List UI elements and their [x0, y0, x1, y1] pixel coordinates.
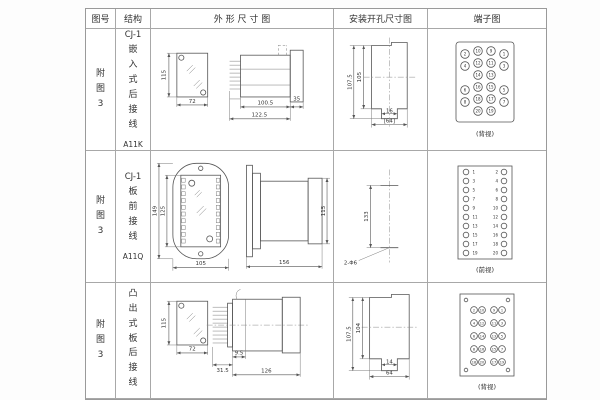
- terminal-number: 6: [473, 334, 475, 338]
- terminal-fins: [230, 61, 241, 89]
- outline-diagram-a11k: 115 72 100.5 35 122.5: [151, 29, 334, 151]
- terminal-number: 20: [475, 108, 481, 113]
- structure-code: A11K: [123, 140, 143, 149]
- dim-115: 115: [161, 69, 167, 79]
- screw-square: [182, 198, 186, 202]
- terminal-number: 12: [475, 60, 481, 65]
- terminal-circle: [463, 232, 469, 238]
- view-caption: (背视): [478, 382, 496, 391]
- terminal-number: 19: [500, 360, 504, 364]
- dim-107-5: 107.5: [346, 326, 352, 342]
- terminal-block-outline: [458, 166, 512, 259]
- terminal-diagram-a11h: 2104126148161820911131351571719 (背视): [428, 283, 546, 399]
- terminal-number: 19: [473, 250, 479, 255]
- terminal-number: 1: [503, 51, 506, 56]
- terminal-number: 10: [480, 308, 484, 312]
- terminal-grid: 2109141211314136161558181772019: [461, 46, 509, 115]
- terminal-number: 15: [492, 347, 496, 351]
- terminal-number: 7: [501, 347, 503, 351]
- terminal-number: 16: [475, 84, 481, 89]
- terminal-number: 18: [475, 96, 481, 101]
- screw-square: [182, 218, 186, 222]
- screw-square: [216, 205, 220, 209]
- view-caption: (背视): [476, 129, 494, 138]
- screw-square: [182, 205, 186, 209]
- structure-desc: 嵌入式后接线: [128, 43, 137, 132]
- dim-72: 72: [189, 98, 196, 104]
- screw-square: [216, 218, 220, 222]
- terminal-number: 2: [495, 169, 498, 174]
- terminal-number: 4: [464, 63, 467, 68]
- structure-a11q: CJ-1 板前接线 A11Q: [116, 151, 151, 283]
- terminal-circle: [501, 223, 507, 229]
- mount-drawing: 107.5 104 14 64: [334, 283, 427, 399]
- terminal-number: 16: [493, 232, 499, 237]
- terminal-number: 4: [495, 178, 498, 183]
- screw-square: [216, 198, 220, 202]
- terminal-number: 12: [480, 321, 484, 325]
- terminal-number: 20: [480, 360, 484, 364]
- screw-square: [216, 178, 220, 182]
- terminal-number: 5: [501, 334, 503, 338]
- front-view: [177, 53, 208, 97]
- terminal-number: 13: [473, 223, 479, 228]
- terminal-number: 3: [473, 178, 476, 183]
- terminal-number: 6: [495, 187, 498, 192]
- dim-35: 35: [293, 96, 300, 102]
- side-view: [246, 165, 322, 256]
- terminal-number: 13: [492, 334, 496, 338]
- header-terminal-diagram: 端子图: [428, 9, 546, 29]
- terminal-circle: [463, 187, 469, 193]
- screw-square: [182, 212, 186, 216]
- terminal-grid: 2104126148161820911131351571719: [464, 298, 510, 372]
- spec-table: 图号 结构 外 形 尺 寸 图 安装开孔尺寸图 端子图 附图3 CJ-1 嵌入式…: [85, 8, 547, 400]
- dim-64: 64: [386, 370, 393, 376]
- front-view: [177, 301, 208, 345]
- screw-square: [182, 232, 186, 236]
- terminal-number: 8: [464, 99, 467, 104]
- terminal-number: 6: [464, 87, 467, 92]
- dim-156: 156: [279, 260, 290, 266]
- structure-code: A11H: [123, 398, 143, 399]
- mount-diagram-a11h: 107.5 104 14 64: [334, 283, 428, 399]
- terminal-circle: [501, 241, 507, 247]
- screw-square: [216, 232, 220, 236]
- mount-drawing: 107.5 105 16 [64]: [334, 29, 427, 151]
- structure-desc: 板前接线: [128, 185, 137, 244]
- terminal-number: 1: [501, 308, 503, 312]
- dim-107-5: 107.5: [347, 74, 353, 90]
- terminal-circle: [501, 250, 507, 256]
- terminal-number: 7: [503, 99, 506, 104]
- terminal-number: 9: [493, 308, 495, 312]
- terminal-circle: [506, 298, 510, 302]
- terminal-number: 14: [493, 223, 499, 228]
- terminal-circle: [463, 205, 469, 211]
- dim-72: 72: [189, 346, 196, 352]
- header-mounting-dims: 安装开孔尺寸图: [334, 9, 428, 29]
- terminal-number: 9: [490, 48, 493, 53]
- front-view: [173, 163, 229, 258]
- terminal-circle: [463, 178, 469, 184]
- view-caption: (前视): [476, 265, 494, 274]
- terminal-circle: [501, 205, 507, 211]
- dim-115-side: 115: [321, 205, 327, 215]
- dim-133: 133: [364, 210, 370, 221]
- terminal-number: 1: [473, 169, 476, 174]
- terminal-number: 4: [473, 321, 476, 325]
- dim-105: 105: [357, 71, 363, 81]
- terminal-drawing: 2104126148161820911131351571719 (背视): [428, 283, 546, 399]
- terminal-number: 5: [503, 87, 506, 92]
- screw-square: [216, 239, 220, 243]
- dim-64-bracket: [64]: [384, 118, 395, 124]
- dim-16: 16: [386, 108, 393, 114]
- document-page: { "header": { "col_fig": "图号", "col_stru…: [0, 0, 600, 400]
- terminal-number: 19: [488, 108, 494, 113]
- terminal-number: 14: [480, 334, 485, 338]
- model-label: CJ-1: [125, 30, 142, 40]
- terminal-circle: [506, 368, 510, 372]
- dim-104: 104: [356, 322, 362, 333]
- terminal-number: 13: [488, 72, 494, 77]
- terminal-number: 18: [472, 360, 476, 364]
- terminal-number: 17: [488, 96, 494, 101]
- screw-square: [182, 178, 186, 182]
- dim-125: 125: [161, 205, 167, 215]
- terminal-number: 16: [480, 347, 484, 351]
- terminal-number: 11: [473, 214, 479, 219]
- terminal-number: 14: [475, 72, 481, 77]
- hatch-marks: [195, 190, 206, 215]
- outline-drawing: 115 72 100.5 35 122.5: [151, 29, 333, 151]
- terminal-block-outline: [460, 294, 514, 376]
- header-structure: 结构: [116, 9, 151, 29]
- terminal-circle: [501, 232, 507, 238]
- mount-diagram-a11k: 107.5 105 16 [64]: [334, 29, 428, 151]
- terminal-number: 20: [493, 250, 499, 255]
- terminal-number: 17: [473, 241, 479, 246]
- terminal-circle: [501, 214, 507, 220]
- screw-square: [182, 239, 186, 243]
- mount-drawing: 133 2-Φ6: [334, 151, 427, 283]
- terminal-number: 15: [488, 84, 494, 89]
- terminal-circle: [463, 169, 469, 175]
- wire-hook: [236, 289, 240, 299]
- structure-a11h: CJ-1 凸出式板后接线 A11H: [116, 283, 151, 399]
- terminal-number: 10: [475, 48, 481, 53]
- dim-100-5: 100.5: [258, 100, 274, 106]
- terminal-number: 17: [492, 360, 496, 364]
- terminal-number: 9: [473, 205, 476, 210]
- terminal-circle: [501, 178, 507, 184]
- outline-diagram-a11q: 149 125 105 156 115: [151, 151, 334, 283]
- terminal-circle: [463, 214, 469, 220]
- terminal-number: 3: [501, 321, 503, 325]
- fig-number-a11k: 附图3: [86, 29, 116, 151]
- hole-spec-label: 2-Φ6: [344, 260, 358, 266]
- dim-122-5: 122.5: [252, 112, 268, 118]
- dim-115: 115: [161, 317, 167, 327]
- screw-square: [216, 225, 220, 229]
- terminal-circle: [464, 298, 468, 302]
- structure-desc: 凸出式板后接线: [128, 287, 137, 391]
- terminal-circle: [464, 368, 468, 372]
- model-label: CJ-1: [125, 283, 142, 284]
- terminal-diagram-a11q: 1357911131517192468101214161820 (前视): [428, 151, 546, 283]
- model-label: CJ-1: [125, 172, 142, 182]
- side-view: [207, 289, 308, 353]
- terminal-number: 7: [473, 196, 476, 201]
- terminal-circle: [463, 223, 469, 229]
- terminal-circle: [463, 250, 469, 256]
- dim-31-5: 31.5: [217, 367, 229, 373]
- dim-9-5: 9.5: [235, 350, 244, 356]
- terminal-number: 2: [464, 51, 467, 56]
- terminal-number: 8: [495, 196, 498, 201]
- terminal-number: 3: [503, 63, 506, 68]
- structure-code: A11Q: [123, 252, 144, 261]
- outline-diagram-a11h: 115 72 9.5 31.5 126: [151, 283, 334, 399]
- terminal-circle: [501, 196, 507, 202]
- terminal-number: 10: [493, 205, 499, 210]
- terminal-circle: [501, 187, 507, 193]
- screw-square: [182, 191, 186, 195]
- side-view: [230, 45, 304, 102]
- terminal-circle: [463, 196, 469, 202]
- terminal-screw-columns: [182, 178, 220, 243]
- outline-drawing: 115 72 9.5 31.5 126: [151, 283, 333, 399]
- screw-square: [216, 184, 220, 188]
- terminal-number: 8: [473, 347, 475, 351]
- header-fig-number: 图号: [86, 9, 116, 29]
- hatch-marks: [187, 313, 202, 336]
- terminal-number: 11: [488, 60, 494, 65]
- terminal-number: 12: [493, 214, 499, 219]
- header-outline-dims: 外 形 尺 寸 图: [151, 9, 334, 29]
- fig-number-a11h: 附图3: [86, 283, 116, 399]
- structure-a11k: CJ-1 嵌入式后接线 A11K: [116, 29, 151, 151]
- outline-drawing: 149 125 105 156 115: [151, 151, 333, 283]
- terminal-diagram-a11k: 2109141211314136161558181772019 (背视): [428, 29, 546, 151]
- screw-square: [182, 225, 186, 229]
- dim-105: 105: [196, 261, 206, 267]
- terminal-number: 15: [473, 232, 479, 237]
- dim-14: 14: [386, 359, 393, 365]
- screw-square: [216, 191, 220, 195]
- fig-number-a11q: 附图3: [86, 151, 116, 283]
- terminal-circle: [463, 241, 469, 247]
- terminal-drawing: 1357911131517192468101214161820 (前视): [428, 151, 546, 283]
- screw-square: [216, 212, 220, 216]
- terminal-drawing: 2109141211314136161558181772019 (背视): [428, 29, 546, 151]
- terminal-number: 18: [493, 241, 499, 246]
- screw-square: [182, 184, 186, 188]
- terminal-grid: 1357911131517192468101214161820: [463, 169, 507, 256]
- dim-126: 126: [261, 368, 272, 374]
- terminal-number: 11: [492, 321, 496, 325]
- terminal-circle: [501, 169, 507, 175]
- dim-149: 149: [152, 205, 158, 216]
- hatch-marks: [187, 65, 202, 88]
- terminal-number: 5: [473, 187, 476, 192]
- terminal-number: 2: [473, 308, 475, 312]
- mount-diagram-a11q: 133 2-Φ6: [334, 151, 428, 283]
